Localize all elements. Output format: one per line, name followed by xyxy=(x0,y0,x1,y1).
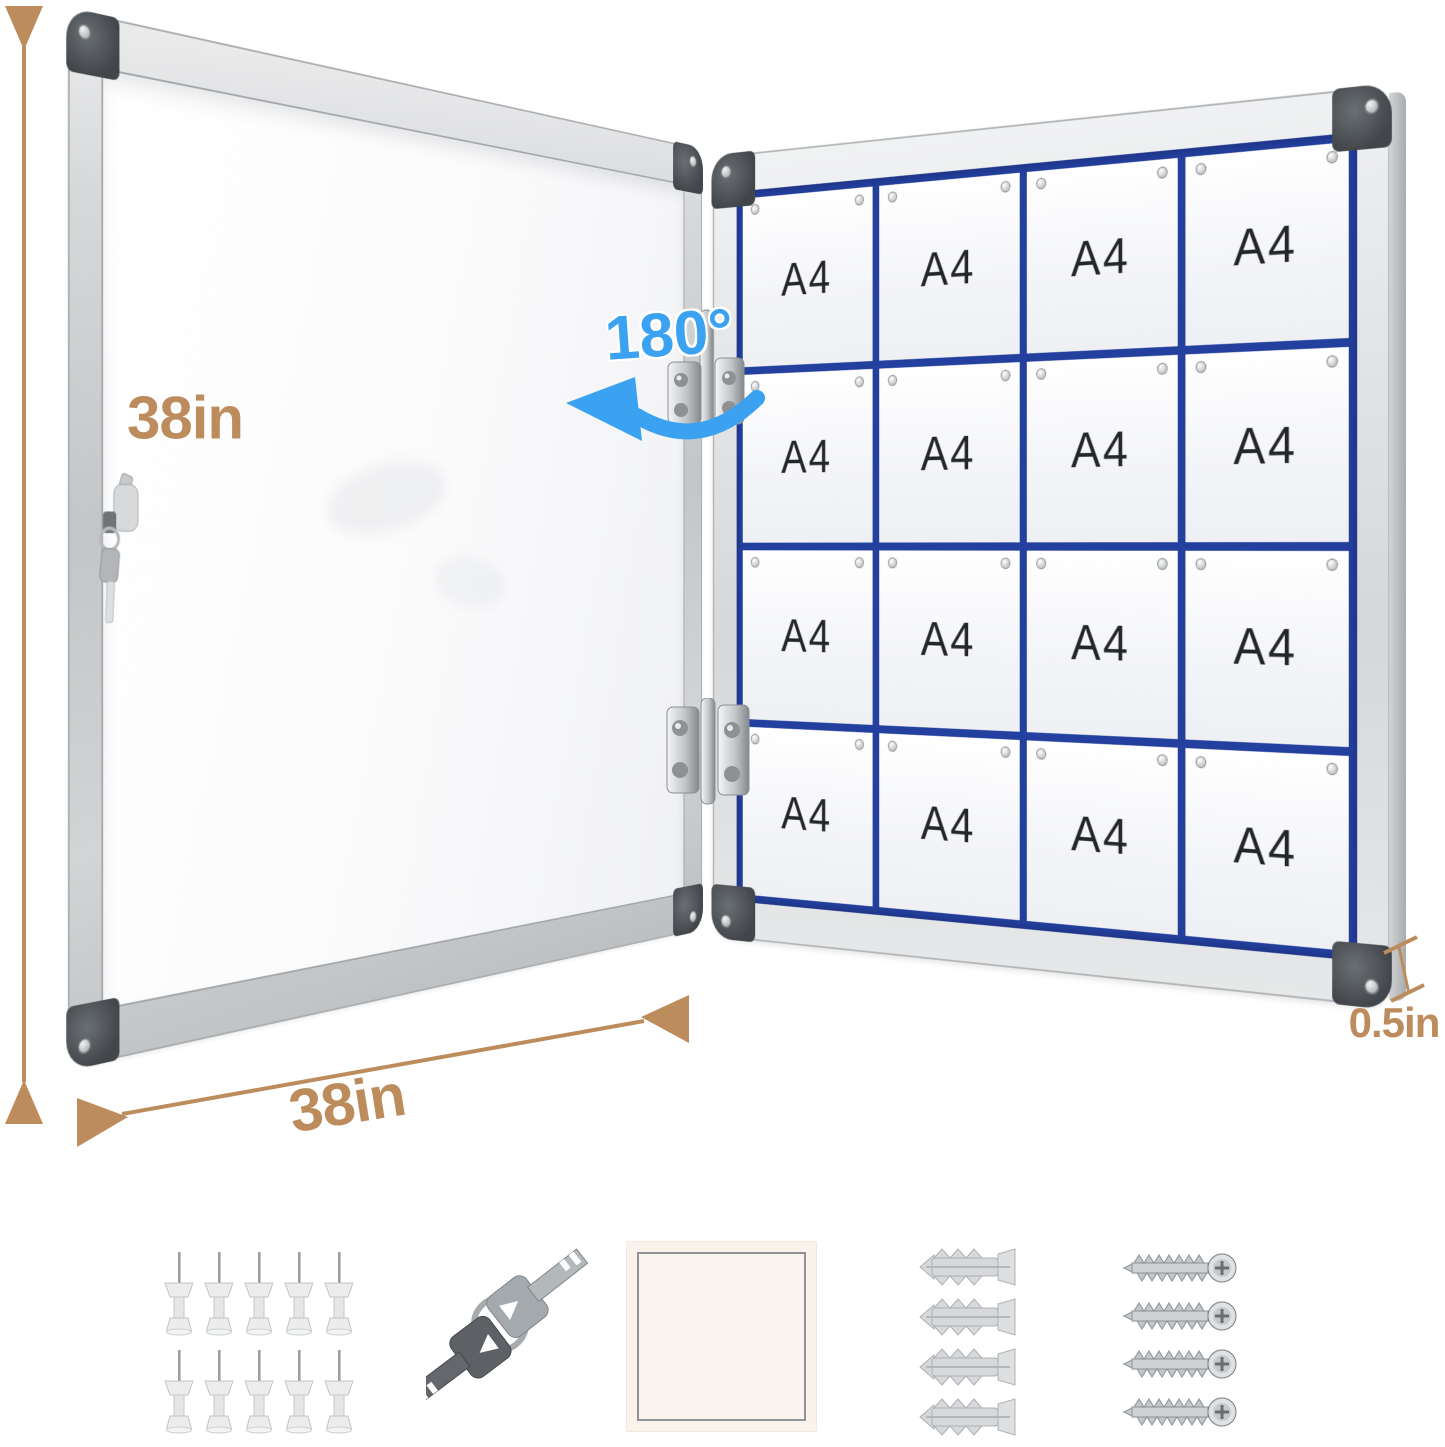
sheet-pin-icon xyxy=(1158,168,1166,178)
push-pin-icon xyxy=(162,1350,196,1440)
bulletin-board-product-diagram: A4A4A4A4A4A4A4A4A4A4A4A4A4A4A4A4 xyxy=(0,0,1445,1447)
a4-label: A4 xyxy=(781,786,832,843)
screw-icon xyxy=(722,166,731,178)
sheet-pin-icon xyxy=(1328,152,1337,163)
width-dimension-label: 38in xyxy=(284,1060,409,1146)
cabinet-side-depth xyxy=(1389,91,1406,1001)
key-light xyxy=(483,1236,588,1341)
a4-label: A4 xyxy=(1071,613,1130,672)
a4-sheet: A4 xyxy=(1026,158,1177,353)
sheet-pin-icon xyxy=(1001,370,1009,379)
screw-icon xyxy=(690,156,696,167)
height-dimension-arrow xyxy=(5,6,43,1124)
corner-cap xyxy=(1332,83,1392,153)
a4-sheet: A4 xyxy=(1026,740,1177,935)
sheet-pin-icon xyxy=(1037,179,1045,189)
wall-anchor-icon xyxy=(918,1296,1036,1338)
push-pin-icon xyxy=(202,1252,236,1342)
mounting-pad xyxy=(626,1241,817,1432)
screw-icon xyxy=(79,24,90,39)
sheet-pin-icon xyxy=(1196,559,1205,569)
a4-label: A4 xyxy=(781,429,832,484)
a4-sheet: A4 xyxy=(879,362,1019,543)
push-pin-icon xyxy=(282,1252,316,1342)
wall-anchor-icon xyxy=(918,1346,1036,1388)
sheet-pin-icon xyxy=(889,375,896,384)
screw-icon xyxy=(690,911,696,922)
sheet-pin-icon xyxy=(1196,362,1205,372)
mounting-pad-border xyxy=(637,1252,806,1421)
a4-label: A4 xyxy=(1234,815,1298,880)
a4-label: A4 xyxy=(1234,415,1298,477)
sheet-pin-icon xyxy=(889,192,896,202)
sheet-pin-icon xyxy=(752,205,759,214)
screw-icon xyxy=(722,915,731,927)
a4-label: A4 xyxy=(1234,616,1298,678)
sheet-pin-icon xyxy=(1196,164,1205,174)
sheet-pin-icon xyxy=(1001,747,1009,757)
sheet-pin-icon xyxy=(1037,369,1045,379)
sheet-pin-icon xyxy=(1328,356,1337,366)
a4-label: A4 xyxy=(781,609,832,664)
screw-icon xyxy=(1122,1298,1242,1334)
a4-sheet: A4 xyxy=(743,368,873,542)
wall-anchor-icon xyxy=(918,1396,1036,1438)
a4-label: A4 xyxy=(921,611,976,668)
push-pin-icon xyxy=(242,1350,276,1440)
sheet-pin-icon xyxy=(1196,757,1205,767)
thickness-dimension-label: 0.5in xyxy=(1349,999,1440,1047)
glass-reflection xyxy=(321,449,450,549)
corner-cap xyxy=(66,7,119,81)
corner-cap xyxy=(711,884,755,943)
a4-label: A4 xyxy=(781,249,832,306)
a4-sheet: A4 xyxy=(1185,551,1349,747)
a4-sheet: A4 xyxy=(1185,346,1349,542)
screw-icon xyxy=(1122,1346,1242,1382)
corner-cap xyxy=(673,883,703,937)
sheet-pin-icon xyxy=(889,558,896,567)
glass-door-panel xyxy=(68,9,702,1069)
a4-label: A4 xyxy=(1071,420,1130,479)
wall-anchor-icon xyxy=(918,1246,1036,1288)
sheet-pin-icon xyxy=(1158,755,1166,765)
push-pin-icon xyxy=(162,1252,196,1342)
push-pins-set xyxy=(162,1252,362,1440)
sheet-pin-icon xyxy=(1037,559,1045,568)
glass-reflection xyxy=(432,551,507,613)
wall-anchors-set xyxy=(918,1246,1036,1438)
screws-set xyxy=(1122,1250,1242,1430)
sheet-pin-icon xyxy=(856,558,863,567)
a4-sheet: A4 xyxy=(879,173,1019,360)
sheet-pin-icon xyxy=(1158,363,1166,373)
corner-cap xyxy=(66,997,119,1071)
push-pin-icon xyxy=(202,1350,236,1440)
screw-icon xyxy=(79,1038,90,1053)
sheet-pin-icon xyxy=(1328,560,1337,570)
a4-label: A4 xyxy=(921,238,976,298)
keys-set xyxy=(426,1228,588,1447)
push-pin-icon xyxy=(322,1350,356,1440)
sheet-pin-icon xyxy=(752,558,759,567)
sheet-pin-icon xyxy=(856,195,863,204)
sheet-pin-icon xyxy=(856,740,863,749)
sheet-pin-icon xyxy=(1328,763,1337,773)
push-pin-icon xyxy=(322,1252,356,1342)
a4-sheet: A4 xyxy=(1185,748,1349,952)
a4-sheet: A4 xyxy=(743,187,873,367)
a4-label: A4 xyxy=(1071,226,1130,288)
sheet-pin-icon xyxy=(1158,559,1166,569)
sheet-pin-icon xyxy=(1001,182,1009,192)
a4-sheet: A4 xyxy=(1185,142,1349,346)
push-pin-icon xyxy=(242,1252,276,1342)
notice-board-cabinet: A4A4A4A4A4A4A4A4A4A4A4A4A4A4A4A4 xyxy=(713,85,1390,1008)
screw-icon xyxy=(1366,980,1378,994)
a4-sheet: A4 xyxy=(879,733,1019,920)
corner-cap xyxy=(711,151,755,210)
screw-icon xyxy=(1122,1250,1242,1286)
door-opening-angle-label: 180° xyxy=(603,295,736,375)
sheet-pin-icon xyxy=(1037,749,1045,759)
screw-icon xyxy=(1366,99,1378,113)
corner-cap xyxy=(673,141,703,195)
a4-sheet: A4 xyxy=(743,726,873,906)
key-dark xyxy=(426,1313,515,1417)
a4-label: A4 xyxy=(1234,213,1298,278)
sheet-pin-icon xyxy=(1001,559,1009,568)
a4-label: A4 xyxy=(921,425,976,482)
a4-sheet: A4 xyxy=(879,550,1019,731)
a4-sheet: A4 xyxy=(743,550,873,724)
a4-sheet: A4 xyxy=(1026,551,1177,739)
sheet-pin-icon xyxy=(752,381,759,390)
keys-icon xyxy=(426,1228,588,1446)
sheet-pin-icon xyxy=(889,741,896,750)
hinge-bottom-icon xyxy=(664,698,754,806)
door-lock-with-key xyxy=(98,472,155,640)
a4-grid-board: A4A4A4A4A4A4A4A4A4A4A4A4A4A4A4A4 xyxy=(737,132,1358,961)
sheet-pin-icon xyxy=(856,377,863,386)
screw-icon xyxy=(1122,1394,1242,1430)
a4-label: A4 xyxy=(921,795,976,855)
a4-sheet: A4 xyxy=(1026,354,1177,542)
door-glass xyxy=(101,68,684,1011)
a4-label: A4 xyxy=(1071,805,1130,867)
push-pin-icon xyxy=(282,1350,316,1440)
height-dimension-label: 38in xyxy=(127,384,243,453)
